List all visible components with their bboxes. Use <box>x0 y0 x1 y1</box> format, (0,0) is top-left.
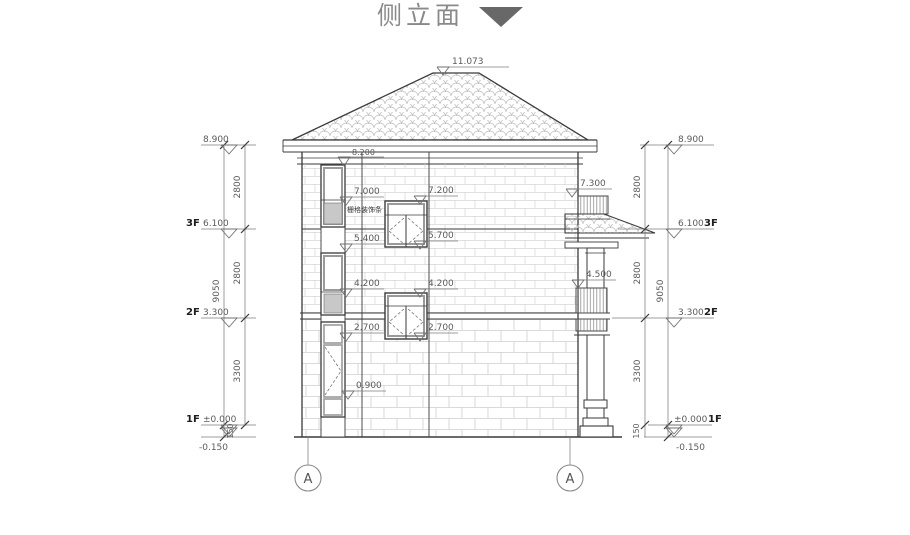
dim-2800-b-left: 2800 <box>233 261 243 284</box>
svg-text:7.200: 7.200 <box>428 186 454 196</box>
porch-column-1f <box>580 335 613 437</box>
dim-2800-a-right: 2800 <box>633 175 643 198</box>
hip-roof: 11.073 <box>283 57 597 164</box>
dim-150-left: 150 <box>226 423 235 438</box>
level-2f-right: 3.300 <box>678 308 704 318</box>
dimension-chain-left: 2800 2800 3300 9050 150 8.900 3F 6.100 2… <box>186 135 256 453</box>
floor-label-2f-right: 2F <box>704 307 718 318</box>
axis-grid-markers: A A <box>295 437 583 491</box>
canopy-cornice <box>565 242 618 248</box>
dim-3300-left: 3300 <box>233 359 243 382</box>
level-3f-right: 6.100 <box>678 219 704 229</box>
svg-text:2.700: 2.700 <box>354 323 380 333</box>
dim-150-right: 150 <box>632 423 641 438</box>
elevation-drawing-page: { "title": { "text": "侧立面" }, "annotatio… <box>0 0 910 535</box>
stair-window-2 <box>321 253 345 315</box>
level-1f-left: ±0.000 <box>203 415 237 425</box>
dim-2800-a-left: 2800 <box>233 175 243 198</box>
title-triangle-icon <box>479 7 523 27</box>
dimension-chain-right: 2800 2800 3300 9050 150 8.900 6.100 3F 3… <box>612 135 722 453</box>
level-ground-left: -0.150 <box>199 443 228 453</box>
drawing-title: 侧立面 <box>377 1 523 30</box>
dim-9050-right: 9050 <box>656 279 666 302</box>
floor-label-1f-right: 1F <box>708 414 722 425</box>
svg-text:7.000: 7.000 <box>354 187 380 197</box>
svg-text:2.700: 2.700 <box>428 323 454 333</box>
column-base <box>580 426 613 437</box>
floor-label-2f-left: 2F <box>186 307 200 318</box>
svg-text:8.200: 8.200 <box>352 148 375 157</box>
spandrel-panel-2 <box>324 294 342 313</box>
level-ground-right: -0.150 <box>676 443 705 453</box>
level-symbols-right <box>666 145 682 437</box>
floor-label-1f-left: 1F <box>186 414 200 425</box>
roof-surface <box>292 73 588 140</box>
level-roof-right: 8.900 <box>678 135 704 145</box>
stair-window-1 <box>321 165 345 227</box>
level-1f-right: ±0.000 <box>674 415 708 425</box>
center-window-3f <box>385 201 427 247</box>
belt-course-2f <box>300 313 610 319</box>
svg-text:5.700: 5.700 <box>428 231 454 241</box>
svg-text:4.500: 4.500 <box>586 270 612 280</box>
stair-window-3 <box>321 322 345 417</box>
railing-3f <box>578 196 608 214</box>
balcony-slab-fascia <box>576 319 607 331</box>
svg-text:4.200: 4.200 <box>428 279 454 289</box>
center-window-2f <box>385 293 427 339</box>
balcony-column-2f <box>587 248 604 288</box>
axis-label-2: A <box>566 472 575 487</box>
axis-label-1: A <box>304 472 313 487</box>
stair-window-strip <box>321 164 345 437</box>
svg-text:5.400: 5.400 <box>354 234 380 244</box>
svg-text:7.300: 7.300 <box>580 179 606 189</box>
page-title: 侧立面 <box>377 1 464 30</box>
dim-9050-left: 9050 <box>212 279 222 302</box>
side-elevation-canvas: 侧立面 11.073 <box>0 0 910 535</box>
column-collar <box>584 400 607 408</box>
level-marker-apex: 11.073 <box>437 57 509 75</box>
decor-strip-label: 栅格装饰条 <box>347 205 382 214</box>
dim-2800-b-right: 2800 <box>633 261 643 284</box>
svg-text:4.200: 4.200 <box>354 279 380 289</box>
railing-2f <box>576 288 607 313</box>
svg-text:0.900: 0.900 <box>356 381 382 391</box>
level-2f-left: 3.300 <box>203 308 229 318</box>
spandrel-panel-1 <box>324 203 342 224</box>
apex-elevation-value: 11.073 <box>452 57 484 67</box>
level-3f-left: 6.100 <box>203 219 229 229</box>
eave-band <box>283 140 597 164</box>
balcony-canopy <box>565 214 655 248</box>
level-roof-left: 8.900 <box>203 135 229 145</box>
floor-label-3f-left: 3F <box>186 218 200 229</box>
dim-3300-right: 3300 <box>633 359 643 382</box>
floor-label-3f-right: 3F <box>704 218 718 229</box>
column-plinth <box>583 418 608 426</box>
